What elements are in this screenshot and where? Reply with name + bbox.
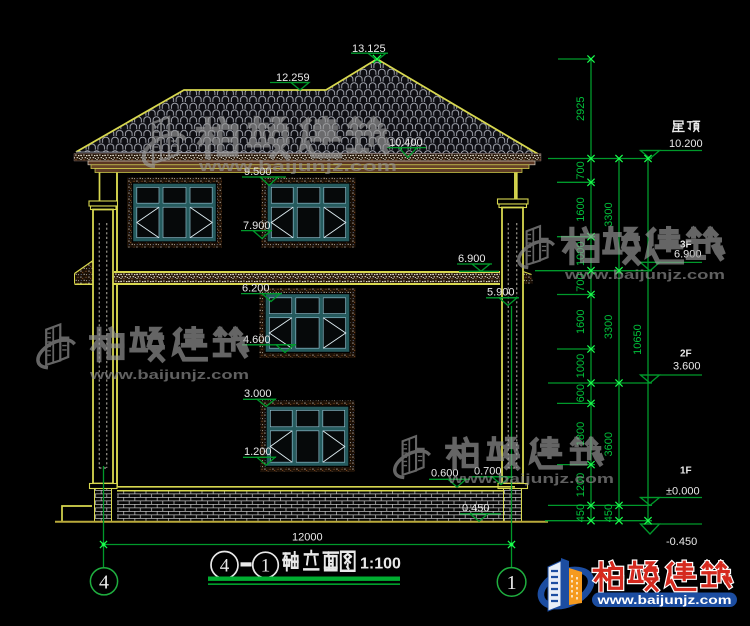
svg-text:1:100: 1:100 bbox=[360, 556, 401, 573]
svg-text:2F: 2F bbox=[680, 349, 692, 360]
svg-text:4.600: 4.600 bbox=[243, 334, 271, 346]
svg-text:450: 450 bbox=[575, 504, 587, 522]
svg-text:0.450: 0.450 bbox=[462, 503, 490, 515]
svg-text:12.259: 12.259 bbox=[276, 72, 310, 84]
svg-text:www.baijunjz.com: www.baijunjz.com bbox=[197, 158, 397, 175]
svg-text:1600: 1600 bbox=[575, 197, 587, 221]
svg-text:www.baijunjz.com: www.baijunjz.com bbox=[89, 367, 249, 382]
svg-text:10.200: 10.200 bbox=[669, 138, 703, 150]
svg-text:6.200: 6.200 bbox=[242, 283, 270, 295]
svg-text:1F: 1F bbox=[680, 466, 692, 477]
svg-text:3.600: 3.600 bbox=[673, 361, 701, 373]
svg-text:4: 4 bbox=[220, 556, 230, 577]
svg-text:1000: 1000 bbox=[575, 354, 587, 378]
svg-text:3300: 3300 bbox=[603, 202, 615, 226]
svg-text:3.000: 3.000 bbox=[244, 388, 272, 400]
svg-text:10650: 10650 bbox=[632, 324, 644, 355]
svg-text:450: 450 bbox=[603, 504, 615, 522]
svg-text:10.400: 10.400 bbox=[389, 137, 423, 149]
svg-text:www.baijunjz.com: www.baijunjz.com bbox=[596, 595, 731, 607]
svg-text:-0.450: -0.450 bbox=[666, 536, 697, 548]
svg-text:2925: 2925 bbox=[575, 97, 587, 121]
svg-text:1: 1 bbox=[261, 556, 271, 577]
svg-text:700: 700 bbox=[575, 161, 587, 179]
svg-text:1.200: 1.200 bbox=[244, 446, 272, 458]
svg-text:1: 1 bbox=[507, 572, 517, 594]
svg-text:600: 600 bbox=[575, 384, 587, 402]
svg-text:www.baijunjz.com: www.baijunjz.com bbox=[447, 471, 614, 486]
svg-text:13.125: 13.125 bbox=[352, 43, 386, 55]
svg-text:4: 4 bbox=[99, 571, 109, 593]
svg-text:3600: 3600 bbox=[603, 432, 615, 456]
svg-text:www.baijunjz.com: www.baijunjz.com bbox=[564, 267, 725, 282]
svg-text:7.900: 7.900 bbox=[243, 220, 271, 232]
svg-text:±0.000: ±0.000 bbox=[666, 486, 700, 498]
svg-text:6.900: 6.900 bbox=[458, 253, 486, 265]
svg-text:3300: 3300 bbox=[603, 315, 615, 339]
svg-text:1600: 1600 bbox=[575, 310, 587, 334]
svg-text:12000: 12000 bbox=[292, 532, 323, 544]
svg-text:5.900: 5.900 bbox=[487, 287, 515, 299]
